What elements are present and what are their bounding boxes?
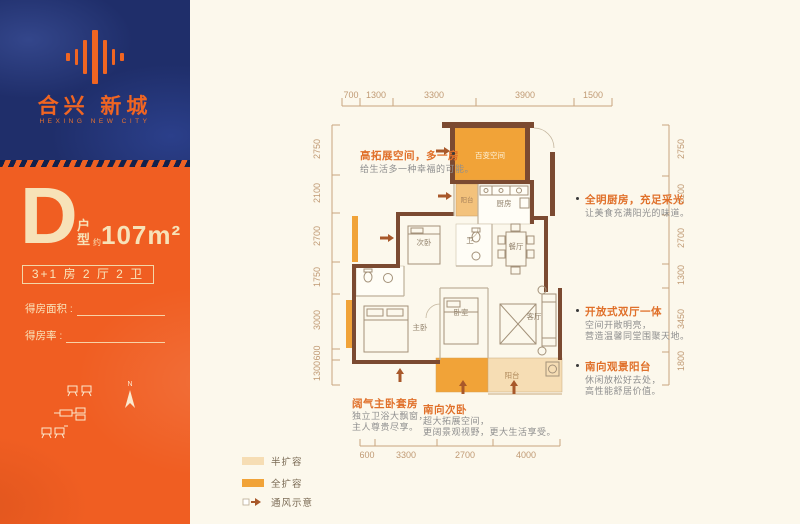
callout-5-line2: 主人尊贵尽享。 (352, 420, 419, 433)
room-label-living: 客厅 (527, 311, 542, 321)
callout-1-dot (452, 152, 455, 155)
building-icon (68, 386, 91, 396)
legend-ventilation: 通风示意 (242, 495, 313, 509)
room-label-bath: 卫 (466, 236, 474, 245)
legend-full-label: 全扩容 (271, 476, 303, 490)
zone-bay-window-2 (346, 300, 353, 348)
full-expand-swatch-icon (242, 479, 264, 487)
callout-4-dot (576, 364, 579, 367)
room-label-dining: 餐厅 (509, 242, 524, 251)
brand-name-en: HEXING NEW CITY (0, 118, 190, 125)
callout-3-dot (576, 309, 579, 312)
callout-3-line2: 营造温馨同堂围聚天地。 (585, 329, 690, 342)
callout-1-title: 高拓展空间，多一房 (360, 148, 459, 163)
callout-1-line1: 给生活多一种幸福的可能。 (360, 162, 474, 175)
building-icon (42, 426, 68, 438)
callout-2-line1: 让美食充满阳光的味道。 (585, 206, 690, 219)
unit-approx: 约 (93, 237, 101, 248)
room-label-bed2: 次卧 (417, 237, 432, 247)
brand-name-cn: 合兴 新城 (0, 90, 190, 120)
room-label-flex: 百变空间 (475, 150, 505, 160)
site-icons: N (30, 378, 160, 450)
legend-vent-label: 通风示意 (271, 495, 313, 509)
zone-bay-window-1 (352, 216, 358, 262)
callout-2-title: 全明厨房，充足采光 (585, 192, 684, 207)
callout-2-dot (576, 197, 579, 200)
field-efficiency-line (66, 329, 165, 343)
legend-half-label: 半扩容 (271, 454, 303, 468)
dim-left-4: 1750 (312, 257, 322, 297)
dim-left-2: 2100 (312, 173, 322, 213)
zone-balcony-bottom (488, 358, 562, 392)
room-label-kitchen: 厨房 (497, 198, 512, 208)
field-floor-area-label: 得房面积 : (25, 301, 73, 316)
callout-6-line2: 更阔景观视野，更大生活享受。 (423, 425, 556, 438)
brand-panel: 合兴 新城 HEXING NEW CITY (0, 0, 190, 160)
unit-type-char-2: 型 (77, 229, 90, 248)
legend-half-expand: 半扩容 (242, 454, 303, 468)
unit-area: 107m² (101, 220, 181, 251)
unit-layout-box: 3+1 房 2 厅 2 卫 (22, 265, 154, 284)
flyer-page: 合兴 新城 HEXING NEW CITY D 户 型 约 107m² 3+1 … (0, 0, 800, 524)
vent-arrow-icon (380, 234, 394, 242)
vent-arrow-icon (396, 368, 404, 382)
dim-left-1: 2750 (312, 129, 322, 169)
divider-stripe (0, 160, 190, 167)
legend-full-expand: 全扩容 (242, 476, 303, 490)
callout-3-title: 开放式双厅一体 (585, 304, 662, 319)
dim-left-3: 2700 (312, 216, 322, 256)
room-ensuite-floor (356, 266, 404, 296)
field-floor-area-line (77, 302, 165, 316)
room-label-balcony-top: 阳台 (461, 195, 474, 204)
dim-left-7: 1300 (312, 351, 322, 391)
field-efficiency: 得房率 : (25, 328, 165, 343)
compass-n-label: N (127, 381, 132, 388)
room-label-balcony-bottom: 阳台 (505, 370, 520, 380)
field-floor-area: 得房面积 : (25, 301, 165, 316)
vent-arrow-icon (438, 192, 452, 200)
compass-north-icon: N (125, 381, 135, 408)
room-label-bed3: 卧室 (454, 307, 469, 317)
building-icon (54, 408, 85, 420)
half-expand-swatch-icon (242, 457, 264, 465)
vent-legend-icon (242, 497, 264, 507)
field-efficiency-label: 得房率 : (25, 328, 62, 343)
room-label-master: 主卧 (413, 322, 428, 332)
brand-logo-icon (66, 28, 124, 86)
callout-4-title: 南向观景阳台 (585, 359, 651, 374)
callout-4-line2: 高性能舒居价值。 (585, 384, 661, 397)
unit-letter: D (20, 176, 78, 256)
